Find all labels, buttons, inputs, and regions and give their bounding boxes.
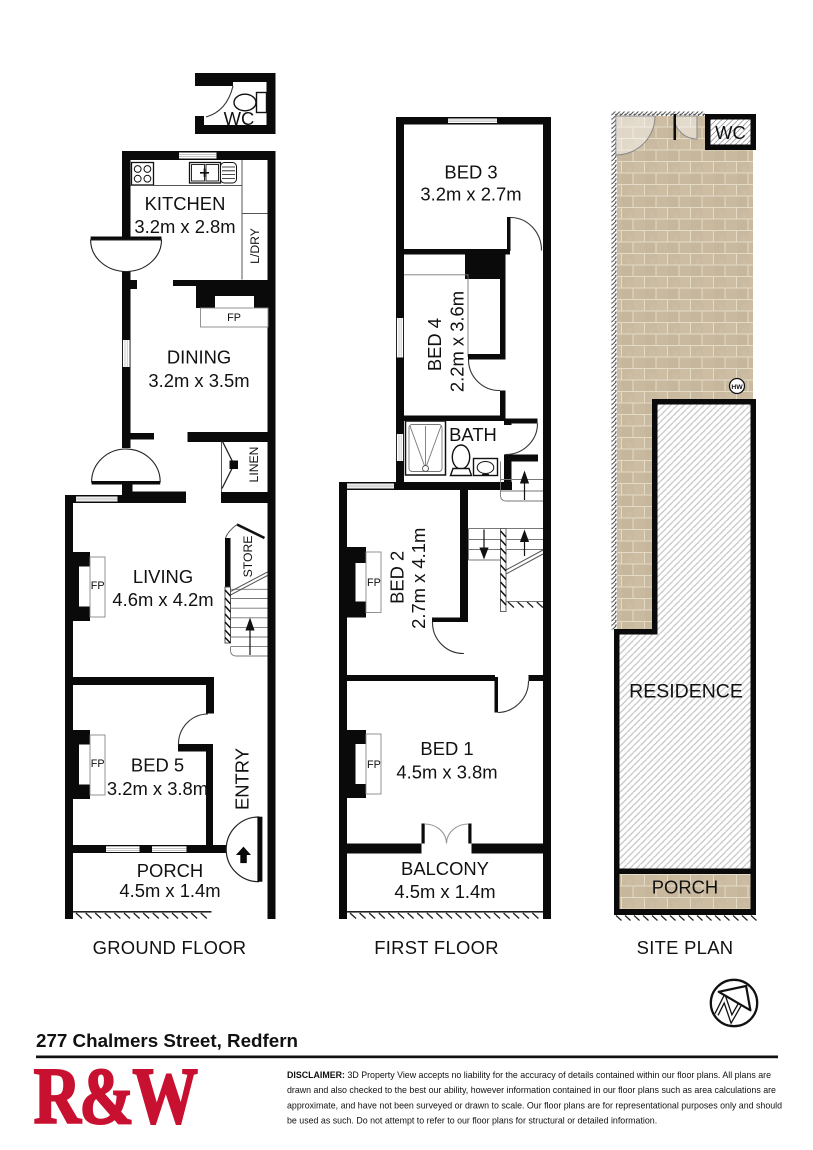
svg-text:4.5m x 1.4m: 4.5m x 1.4m [119, 880, 220, 901]
svg-text:BED 3: BED 3 [444, 162, 497, 183]
svg-text:277 Chalmers Street, Redfern: 277 Chalmers Street, Redfern [36, 1030, 298, 1051]
svg-text:WC: WC [224, 108, 255, 129]
svg-text:FP: FP [367, 759, 381, 771]
svg-text:be used as such. Do not attemp: be used as such. Do not attempt to refer… [287, 1116, 657, 1126]
svg-text:BED 4: BED 4 [424, 318, 445, 371]
svg-text:3.2m x 3.5m: 3.2m x 3.5m [148, 370, 249, 391]
svg-text:3.2m x 3.8m: 3.2m x 3.8m [107, 778, 208, 799]
svg-text:SITE PLAN: SITE PLAN [637, 937, 734, 958]
svg-text:RESIDENCE: RESIDENCE [629, 681, 743, 703]
svg-text:ENTRY: ENTRY [232, 748, 253, 810]
svg-text:3.2m x 2.7m: 3.2m x 2.7m [420, 184, 521, 205]
svg-text:FP: FP [367, 577, 381, 589]
svg-text:BALCONY: BALCONY [401, 858, 489, 879]
svg-text:LINEN: LINEN [247, 447, 261, 483]
svg-text:4.6m x 4.2m: 4.6m x 4.2m [112, 589, 213, 610]
svg-text:FIRST FLOOR: FIRST FLOOR [374, 937, 499, 958]
svg-text:BED 2: BED 2 [387, 551, 408, 604]
svg-text:2.7m x 4.1m: 2.7m x 4.1m [408, 528, 429, 629]
svg-text:HW: HW [731, 384, 743, 391]
svg-text:BED 5: BED 5 [131, 754, 184, 775]
svg-text:STORE: STORE [241, 536, 255, 578]
svg-text:DINING: DINING [167, 347, 231, 368]
svg-text:BATH: BATH [449, 424, 497, 445]
svg-text:FP: FP [91, 758, 105, 770]
svg-text:PORCH: PORCH [652, 877, 718, 898]
svg-text:4.5m x 3.8m: 4.5m x 3.8m [396, 762, 497, 783]
svg-text:KITCHEN: KITCHEN [145, 193, 226, 214]
svg-text:L/DRY: L/DRY [248, 228, 262, 264]
svg-text:2.2m x 3.6m: 2.2m x 3.6m [446, 291, 467, 392]
svg-text:LIVING: LIVING [133, 566, 193, 587]
svg-text:approximate, and have not been: approximate, and have not been surveyed … [287, 1100, 782, 1110]
svg-text:BED 1: BED 1 [420, 738, 473, 759]
svg-text:WC: WC [715, 122, 746, 143]
svg-text:PORCH: PORCH [137, 860, 203, 881]
svg-text:4.5m x 1.4m: 4.5m x 1.4m [394, 881, 495, 902]
svg-text:FP: FP [227, 312, 241, 324]
svg-text:DISCLAIMER: 3D Property View a: DISCLAIMER: 3D Property View accepts no … [287, 1070, 771, 1080]
svg-text:GROUND FLOOR: GROUND FLOOR [93, 937, 247, 958]
svg-text:drawn and also checked to the: drawn and also checked to the best our a… [287, 1085, 776, 1095]
svg-text:R&W: R&W [34, 1052, 197, 1141]
svg-text:FP: FP [91, 580, 105, 592]
svg-text:3.2m x 2.8m: 3.2m x 2.8m [134, 216, 235, 237]
